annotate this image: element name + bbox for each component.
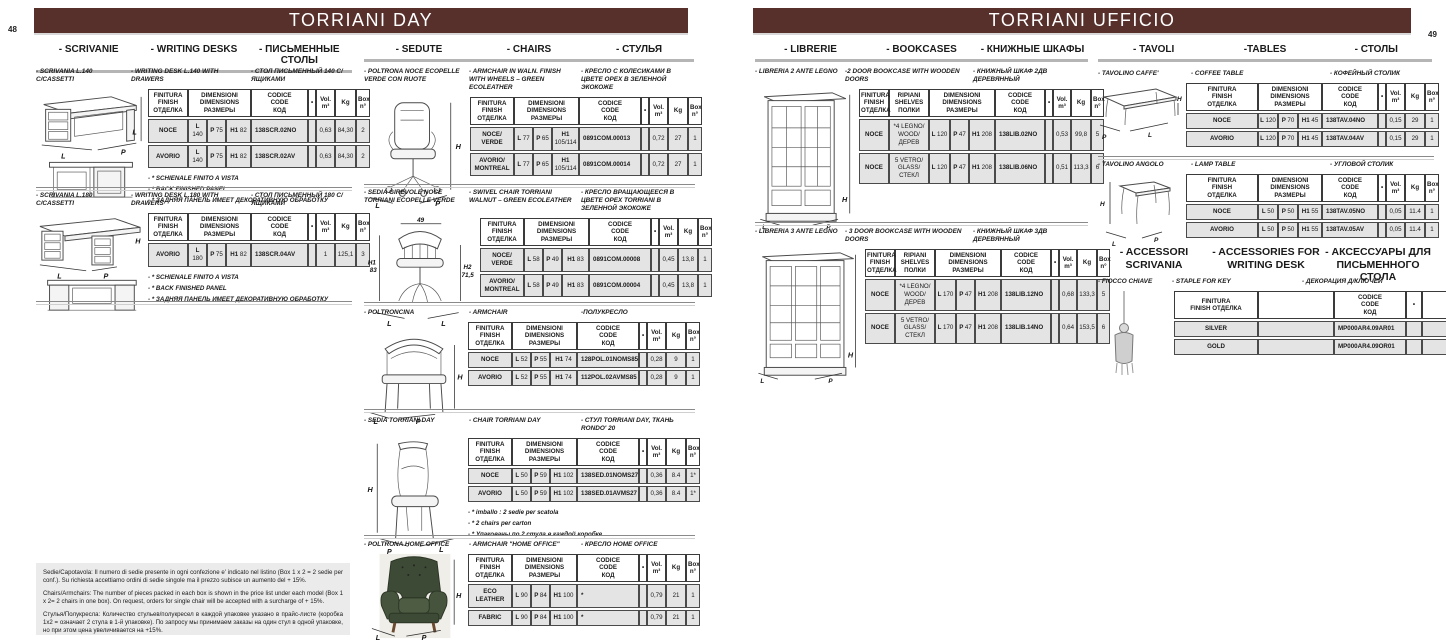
column-header: • <box>639 322 647 350</box>
spec-cell: H1 83 <box>562 248 589 272</box>
column-header: RIPIANI SHELVES ПОЛКИ <box>895 249 935 277</box>
column-header: Vol. m³ <box>649 97 668 125</box>
spec-table-grid: FINITURA FINISH ОТДЕЛКАDIMENSIONI DIMENS… <box>480 216 712 299</box>
spec-row: AVORIOL 140P 75H1 82138SCR.02AV0,6384,30… <box>148 145 370 169</box>
spec-cell: L 52 <box>512 370 531 386</box>
fig-label-p: P <box>1102 134 1107 141</box>
spec-cell: P 70 <box>1278 131 1298 147</box>
packing-note-box: Sedie/Capotavola: Il numero di sedie pre… <box>36 563 350 635</box>
spec-cell: AVORIO <box>468 486 512 502</box>
spec-row: NOCE*4 LEGNO/ WOOD/ДЕРЕВL 170P 47H1 2081… <box>865 279 1110 310</box>
column-header: CODICE CODE КОД <box>589 218 651 246</box>
divider <box>1098 156 1434 160</box>
spec-cell: NOCE <box>148 119 188 143</box>
column-header: CODICE CODE КОД <box>577 554 639 582</box>
spec-cell <box>1378 204 1386 220</box>
spec-row: NOCE5 VETRO/ GLASS/СТЕКЛL 170P 47H1 2081… <box>865 313 1110 344</box>
column-header: Kg <box>1077 249 1097 277</box>
column-header: Kg <box>1071 89 1091 117</box>
spec-cell: H1 102 <box>550 486 577 502</box>
spec-cell: 0,15 <box>1386 113 1405 129</box>
spec-cell: P 47 <box>950 153 969 184</box>
spec-cell <box>1051 313 1059 344</box>
column-header: FINITURA FINISH ОТДЕЛКА <box>468 438 512 466</box>
divider <box>36 187 352 191</box>
spec-cell: 0,45 <box>659 274 678 298</box>
spec-cell: * <box>577 584 639 608</box>
spec-row: FABRICL 90P 84H1 100*0,79211 <box>468 610 700 626</box>
product-titles: - LIBRERIA 2 ANTE LEGNO -2 DOOR BOOKCASE… <box>755 68 1088 84</box>
product-titles: - SCRIVANIA L.180 C/CASSETTI - WRITING D… <box>36 192 352 208</box>
section-label-ru: - СТОЛЫ <box>1321 44 1432 55</box>
column-header: Kg <box>666 554 686 582</box>
spec-cell: 1* <box>686 486 700 502</box>
spec-row: AVORIO/ MONTREALL 58P 49H1 830891COM.000… <box>480 274 712 298</box>
product-title-it: - POLTRONA HOME OFFICE <box>364 541 469 549</box>
section-label-it: - SCRIVANIE <box>36 44 141 66</box>
spec-cell: NOCE <box>1186 113 1258 129</box>
spec-cell: 0,28 <box>647 352 666 368</box>
product-title-en: - WRITING DESK L.180 WITH DRAWERS <box>131 192 251 208</box>
fig-label-h: H <box>456 592 462 600</box>
page-number-left: 48 <box>8 25 17 34</box>
spec-cell: 84,30 <box>335 145 356 169</box>
column-header: Kg <box>1405 83 1425 111</box>
spec-cell <box>639 486 647 502</box>
spec-cell: 112POL.02AVMS85 <box>577 370 639 386</box>
product-title-en: - CHAIR TORRIANI DAY <box>469 417 581 433</box>
column-header: Vol. m³ <box>647 554 666 582</box>
spec-cell: P 47 <box>950 119 969 150</box>
page-number-right: 49 <box>1428 30 1437 39</box>
product-titles: - SCRIVANIA L.140 C/CASSETTI - WRITING D… <box>36 68 352 84</box>
column-header <box>1422 291 1446 319</box>
product-title-en: - COFFEE TABLE <box>1191 70 1330 78</box>
product-title-ru: - КОФЕЙНЫЙ СТОЛИК <box>1330 70 1434 78</box>
column-header: • <box>651 218 659 246</box>
product-title-it: - SCRIVANIA L.140 C/CASSETTI <box>36 68 131 84</box>
spec-cell: NOCE <box>468 468 512 484</box>
product-title-it: - SCRIVANIA L.180 C/CASSETTI <box>36 192 131 208</box>
spec-cell: AVORIO/ MONTREAL <box>470 153 514 177</box>
column-header: CODICE CODE КОД <box>251 213 308 241</box>
column-header: Box n° <box>686 438 700 466</box>
spec-row: NOCE5 VETRO/ GLASS/СТЕКЛL 120P 47H1 2081… <box>859 153 1104 184</box>
spec-row: NOCE/ VERDEL 58P 49H1 830891COM.000080,4… <box>480 248 712 272</box>
spec-cell: NOCE <box>865 279 895 310</box>
desk-180-drawing: H L P <box>36 211 144 315</box>
column-header: Box n° <box>698 218 712 246</box>
column-header: FINITURA FINISH ОТДЕЛКА <box>148 89 188 117</box>
spec-cell: H1 45 <box>1298 131 1322 147</box>
product-title-ru: - КРЕСЛО С КОЛЕСИКАМИ В ЦВЕТЕ ОРЕХ В ЗЕЛ… <box>581 68 695 92</box>
spec-cell: L 50 <box>1258 222 1278 238</box>
column-header: Kg <box>666 438 686 466</box>
spec-cell: L 58 <box>524 248 543 272</box>
column-header: • <box>1051 249 1059 277</box>
spec-cell: 138SCR.04AV <box>251 243 308 267</box>
product-title-it: - TAVOLINO CAFFE' <box>1098 70 1191 78</box>
spec-cell: P 75 <box>207 243 226 267</box>
column-header: DIMENSIONI DIMENSIONS РАЗМЕРЫ <box>512 322 577 350</box>
product-titles: - SEDIA GIREVOLE NOCE TORRIANI ECOPELLE … <box>364 189 695 213</box>
spec-cell: L 50 <box>512 468 531 484</box>
spec-cell: 1 <box>1425 131 1439 147</box>
section-label-it: - SEDUTE <box>364 44 474 55</box>
column-header: Box n° <box>686 554 700 582</box>
product-chair-torriani-day: - SEDIA TORRIANI DAY - CHAIR TORRIANI DA… <box>364 417 695 554</box>
fig-label-h1: H1 <box>368 259 377 266</box>
spec-cell: 138LIB.12NO <box>1001 279 1051 310</box>
spec-cell: 0891COM.00013 <box>579 127 641 151</box>
spec-table: FINITURA FINISH ОТДЕЛКАDIMENSIONI DIMENS… <box>480 216 695 299</box>
product-title-it: - SEDIA GIREVOLE NOCE TORRIANI ECOPELLE … <box>364 189 469 213</box>
column-header: CODICE CODE КОД <box>995 89 1045 117</box>
fig-label-h: L <box>132 127 136 136</box>
note-line: Sedie/Capotavola: Il numero di sedie pre… <box>43 569 343 585</box>
divider <box>755 222 1088 226</box>
column-header: FINITURA FINISH ОТДЕЛКА <box>1186 174 1258 202</box>
spec-cell: *4 LEGNO/ WOOD/ДЕРЕВ <box>889 119 929 150</box>
spec-table-grid: FINITURA FINISH ОТДЕЛКАDIMENSIONI DIMENS… <box>148 87 370 170</box>
product-poltroncina: - POLTRONCINA - ARMCHAIR -ПОЛУКРЕСЛО H L… <box>364 309 695 424</box>
product-lamp-table: - TAVOLINO ANGOLO - LAMP TABLE - УГЛОВОЙ… <box>1098 161 1434 250</box>
column-header: FINITURA FINISH ОТДЕЛКА <box>468 322 512 350</box>
section-label-ru: - КНИЖНЫЕ ШКАФЫ <box>977 44 1088 55</box>
product-title-en: -2 DOOR BOOKCASE WITH WOODEN DOORS <box>845 68 973 84</box>
column-header: CODICE CODE КОД <box>1001 249 1051 277</box>
column-header: CODICE CODE КОД <box>1334 291 1406 319</box>
spec-cell: 5 VETRO/ GLASS/СТЕКЛ <box>889 153 929 184</box>
column-header: • <box>1406 291 1422 319</box>
fig-label-h: H <box>1177 96 1182 103</box>
column-header: Box n° <box>688 97 702 125</box>
spec-cell: 1 <box>686 610 700 626</box>
spec-row: ECO LEATHERL 90P 84H1 100*0,79211 <box>468 584 700 608</box>
spec-cell: H1 82 <box>226 119 251 143</box>
spec-cell: P 55 <box>531 370 550 386</box>
spec-cell: H1 82 <box>226 145 251 169</box>
key-tassel-drawing <box>1098 289 1170 385</box>
spec-row: NOCEL 52P 55H1 74128POL.01NOMS850,2891 <box>468 352 700 368</box>
spec-cell: H1 55 <box>1298 204 1322 220</box>
column-header: DIMENSIONI DIMENSIONS РАЗМЕРЫ <box>1258 83 1322 111</box>
note-line: Стулья/Полукресла: Количество стульев/по… <box>43 611 343 635</box>
product-title-en: - 3 DOOR BOOKCASE WITH WOODEN DOORS <box>845 228 973 244</box>
spec-cell <box>1045 153 1053 184</box>
column-header: • <box>308 89 316 117</box>
spec-cell: L 170 <box>935 279 956 310</box>
fig-label-p: P <box>103 271 108 280</box>
spec-cell: 0,53 <box>1053 119 1071 150</box>
spec-cell: 0,79 <box>647 610 666 626</box>
column-header: DIMENSIONI DIMENSIONS РАЗМЕРЫ <box>188 213 251 241</box>
spec-cell: P 49 <box>543 248 562 272</box>
spec-cell: 1 <box>316 243 335 267</box>
product-desk-180: - SCRIVANIA L.180 C/CASSETTI - WRITING D… <box>36 192 352 315</box>
spec-cell: H1 208 <box>975 313 1001 344</box>
product-titles: - TAVOLINO ANGOLO - LAMP TABLE - УГЛОВОЙ… <box>1098 161 1434 169</box>
product-title-ru: - ДЕКОРАЦИЯ Д/КЛЮЧЕЙ <box>1302 278 1434 286</box>
spec-cell <box>641 127 649 151</box>
spec-cell: L 77 <box>514 127 533 151</box>
note-line: Chairs/Armchairs: The number of pieces p… <box>43 590 343 606</box>
spec-cell <box>639 584 647 608</box>
spec-table-grid: FINITURA FINISH ОТДЕЛКАDIMENSIONI DIMENS… <box>468 552 700 628</box>
spec-cell <box>651 248 659 272</box>
product-title-ru: - СТОЛ ПИСЬМЕННЫЙ 180 С/ЯЩИКАМИ <box>251 192 352 208</box>
product-titles: - FIOCCO CHIAVE - STAPLE FOR KEY - ДЕКОР… <box>1098 278 1434 286</box>
spec-table: FINITURA FINISH ОТДЕЛКАDIMENSIONI DIMENS… <box>148 87 352 170</box>
spec-cell: 1 <box>698 248 712 272</box>
section-header-librerie: - LIBRERIE - BOOKCASES - КНИЖНЫЕ ШКАФЫ <box>755 44 1088 62</box>
section-label-ru: - ПИСЬМЕННЫЕ СТОЛЫ <box>247 44 352 66</box>
fig-label-l: L <box>376 634 380 640</box>
spec-row: AVORIOL 50P 50H1 55138TAV.05AV0,0511.41 <box>1186 222 1439 238</box>
spec-cell: 0,51 <box>1053 153 1071 184</box>
spec-cell: P 55 <box>531 352 550 368</box>
fig-label-l: L <box>57 271 61 280</box>
page-title-torriani-day: TORRIANI DAY <box>34 8 688 35</box>
spec-cell: 0891COM.00008 <box>589 248 651 272</box>
fig-label-p: P <box>1154 237 1159 244</box>
spec-cell: 0,45 <box>659 248 678 272</box>
spec-cell <box>651 274 659 298</box>
spec-cell: H1 82 <box>226 243 251 267</box>
spec-cell: P 75 <box>207 145 226 169</box>
spec-row: NOCE*4 LEGNO/ WOOD/ДЕРЕВL 120P 47H1 2081… <box>859 119 1104 150</box>
spec-cell <box>1378 222 1386 238</box>
product-bookcase-2-door: - LIBRERIA 2 ANTE LEGNO -2 DOOR BOOKCASE… <box>755 68 1088 229</box>
spec-cell: 1 <box>698 274 712 298</box>
column-header: • <box>639 554 647 582</box>
fig-label-h: H <box>457 373 463 382</box>
bookcase-3-door-drawing: H L P <box>755 247 861 383</box>
column-header: Vol. m³ <box>316 89 335 117</box>
spec-cell: 138SED.01NOMS27 <box>577 468 639 484</box>
product-titles: - POLTRONA HOME OFFICE - ARMCHAIR "HOME … <box>364 541 695 549</box>
column-header: CODICE CODE КОД <box>1322 83 1378 111</box>
spec-row: AVORIOL 52P 55H1 74112POL.02AVMS850,2891 <box>468 370 700 386</box>
spec-cell: SILVER <box>1174 321 1258 337</box>
spec-cell: H1 100 <box>550 610 577 626</box>
product-title-en: - SWIVEL CHAIR TORRIANI WALNUT – GREEN E… <box>469 189 581 213</box>
spec-cell: AVORIO <box>148 243 188 267</box>
column-header: FINITURA FINISH ОТДЕЛКА <box>865 249 895 277</box>
spec-cell: 0,36 <box>647 468 666 484</box>
product-titles: - TAVOLINO CAFFE' - COFFEE TABLE - КОФЕЙ… <box>1098 70 1434 78</box>
spec-cell: 29 <box>1405 113 1425 129</box>
product-title-ru: - УГЛОВОЙ СТОЛИК <box>1330 161 1434 169</box>
spec-cell: H1 208 <box>969 119 995 150</box>
spec-cell: NOCE <box>468 352 512 368</box>
spec-cell: AVORIO <box>468 370 512 386</box>
spec-cell <box>639 370 647 386</box>
spec-table: FINITURA FINISH ОТДЕЛКАRIPIANI SHELVES П… <box>865 247 1088 346</box>
spec-cell: 1 <box>686 370 700 386</box>
column-header: DIMENSIONI DIMENSIONS РАЗМЕРЫ <box>512 554 577 582</box>
product-title-it: - LIBRERIA 3 ANTE LEGNO <box>755 228 845 244</box>
spec-cell: 138TAV.04AV <box>1322 131 1378 147</box>
spec-cell: 0,64 <box>1059 313 1077 344</box>
spec-cell: 8.4 <box>666 468 686 484</box>
product-title-ru: - СТОЛ ПИСЬМЕННЫЙ 140 С/ЯЩИКАМИ <box>251 68 352 84</box>
product-title-ru: - КНИЖНЫЙ ШКАФ 2ДВ ДЕРЕВЯННЫЙ <box>973 68 1088 84</box>
product-title-en: - ARMCHAIR "HOME OFFICE" <box>469 541 581 549</box>
column-header: • <box>641 97 649 125</box>
spec-table: FINITURA FINISH ОТДЕЛКАCODICE CODE КОД•S… <box>1174 289 1434 357</box>
spec-cell: P 84 <box>531 584 550 608</box>
spec-cell <box>308 119 316 143</box>
spec-table-grid: FINITURA FINISH ОТДЕЛКАDIMENSIONI DIMENS… <box>1186 172 1439 240</box>
column-header: Box n° <box>686 322 700 350</box>
product-title-ru: - КРЕСЛО HOME OFFICE <box>581 541 695 549</box>
spec-cell: 9 <box>666 352 686 368</box>
fig-label-h: H <box>456 142 462 151</box>
fig-label-l: L <box>61 152 65 161</box>
column-header: Kg <box>335 213 356 241</box>
spec-cell: H1 208 <box>969 153 995 184</box>
spec-cell: L 50 <box>1258 204 1278 220</box>
spec-table-grid: FINITURA FINISH ОТДЕЛКАDIMENSIONI DIMENS… <box>468 320 700 388</box>
spec-cell: P 75 <box>207 119 226 143</box>
column-header: Box n° <box>1425 83 1439 111</box>
spec-cell: P 59 <box>531 468 550 484</box>
spec-cell: 113,3 <box>1071 153 1091 184</box>
spec-cell: L 77 <box>514 153 533 177</box>
product-title-ru: - КРЕСЛО ВРАЩАЮЩЕЕСЯ В ЦВЕТЕ ОРЕХ TORRIA… <box>581 189 695 213</box>
column-header: • <box>1378 83 1386 111</box>
spec-cell: P 50 <box>1278 222 1298 238</box>
spec-cell: 1 <box>686 584 700 608</box>
column-header: CODICE CODE КОД <box>579 97 641 125</box>
spec-table: FINITURA FINISH ОТДЕЛКАDIMENSIONI DIMENS… <box>148 211 352 269</box>
spec-cell: H1 100 <box>550 584 577 608</box>
spec-cell: P 65 <box>533 127 552 151</box>
product-titles: - SEDIA TORRIANI DAY - CHAIR TORRIANI DA… <box>364 417 695 433</box>
product-title-en: - STAPLE FOR KEY <box>1172 278 1302 286</box>
spec-cell <box>308 145 316 169</box>
spec-cell: H1 105/114 <box>552 127 579 151</box>
fig-label-h1-value: 83 <box>370 267 377 274</box>
spec-cell: P 47 <box>956 313 975 344</box>
spec-cell: 138SCR.02AV <box>251 145 308 169</box>
spec-cell: H1 55 <box>1298 222 1322 238</box>
column-header: CODICE CODE КОД <box>577 322 639 350</box>
spec-table-grid: FINITURA FINISH ОТДЕЛКАDIMENSIONI DIMENS… <box>470 95 702 178</box>
spec-cell <box>639 468 647 484</box>
spec-cell: 0,72 <box>649 127 668 151</box>
spec-cell: L 90 <box>512 610 531 626</box>
spec-cell: 138TAV.05AV <box>1322 222 1378 238</box>
spec-row: NOCE/ VERDEL 77P 65H1 105/1140891COM.000… <box>470 127 702 151</box>
column-header: DIMENSIONI DIMENSIONS РАЗМЕРЫ <box>188 89 251 117</box>
section-label-it: - LIBRERIE <box>755 44 866 55</box>
spec-cell: 138TAV.04NO <box>1322 113 1378 129</box>
column-header: DIMENSIONI DIMENSIONS РАЗМЕРЫ <box>1258 174 1322 202</box>
divider <box>364 535 695 539</box>
spec-cell: P 84 <box>531 610 550 626</box>
spec-cell: ECO LEATHER <box>468 584 512 608</box>
column-header: CODICE CODE КОД <box>1322 174 1378 202</box>
spec-row: AVORIOL 180P 75H1 82138SCR.04AV1125,13 <box>148 243 370 267</box>
column-header: FINITURA FINISH ОТДЕЛКА <box>470 97 514 125</box>
spec-cell: FABRIC <box>468 610 512 626</box>
column-header: RIPIANI SHELVES ПОЛКИ <box>889 89 929 117</box>
fig-label-h2: H2 <box>463 264 472 271</box>
spec-cell: L 120 <box>1258 113 1278 129</box>
spec-cell: L 180 <box>188 243 207 267</box>
product-title-ru: - СТУЛ TORRIANI DAY, ТКАНЬ RONDO' 20 <box>581 417 695 433</box>
spec-cell: 13,8 <box>678 274 698 298</box>
spec-cell: AVORIO <box>148 145 188 169</box>
lamp-table-drawing: H L P <box>1098 172 1182 250</box>
product-title-it: - TAVOLINO ANGOLO <box>1098 161 1191 169</box>
column-header: FINITURA FINISH ОТДЕЛКА <box>1174 291 1258 319</box>
fig-label-l: L <box>1148 132 1152 139</box>
spec-cell <box>1051 279 1059 310</box>
fig-label-l: L <box>760 378 764 383</box>
spec-cell: H1 45 <box>1298 113 1322 129</box>
column-header: FINITURA FINISH ОТДЕЛКА <box>1186 83 1258 111</box>
spec-table-grid: FINITURA FINISH ОТДЕЛКАDIMENSIONI DIMENS… <box>468 436 700 504</box>
spec-cell: P 70 <box>1278 113 1298 129</box>
coffee-table-drawing: H P L <box>1098 81 1182 143</box>
fig-label-p: P <box>121 148 126 157</box>
product-notes: - * imballo : 2 sedie per scatola- * 2 c… <box>468 509 695 538</box>
spec-cell: 138SED.01AVMS27 <box>577 486 639 502</box>
product-title-en: - LAMP TABLE <box>1191 161 1330 169</box>
spec-table: FINITURA FINISH ОТДЕЛКАDIMENSIONI DIMENS… <box>1186 81 1434 149</box>
spec-cell: P 59 <box>531 486 550 502</box>
spec-cell <box>1406 339 1422 355</box>
column-header: Vol. m³ <box>316 213 335 241</box>
spec-cell: 0,05 <box>1386 204 1405 220</box>
spec-cell: 27 <box>668 127 688 151</box>
spec-cell: 138LIB.06NO <box>995 153 1045 184</box>
product-title-it: - POLTRONA NOCE ECOPELLE VERDE CON RUOTE <box>364 68 469 92</box>
spec-cell: 128POL.01NOMS85 <box>577 352 639 368</box>
spec-cell: 0,68 <box>1059 279 1077 310</box>
column-header: • <box>1045 89 1053 117</box>
spec-cell: 1 <box>1425 222 1439 238</box>
spec-cell: AVORIO <box>1186 222 1258 238</box>
section-label-en: - CHAIRS <box>474 44 584 55</box>
spec-cell: 138LIB.02NO <box>995 119 1045 150</box>
column-header: • <box>1378 174 1386 202</box>
spec-cell: L 120 <box>929 153 950 184</box>
spec-cell: 11.4 <box>1405 204 1425 220</box>
product-title-it: - FIOCCO CHIAVE <box>1098 278 1172 286</box>
column-header: Vol. m³ <box>659 218 678 246</box>
product-key-tassel: - FIOCCO CHIAVE - STAPLE FOR KEY - ДЕКОР… <box>1098 278 1434 385</box>
column-header: Vol. m³ <box>647 322 666 350</box>
spec-cell: AVORIO/ MONTREAL <box>480 274 524 298</box>
column-header <box>1258 291 1334 319</box>
column-header: Box n° <box>1425 174 1439 202</box>
spec-cell: P 47 <box>956 279 975 310</box>
spec-cell <box>1422 321 1446 337</box>
spec-cell: H1 208 <box>975 279 1001 310</box>
spec-cell: 29 <box>1405 131 1425 147</box>
product-title-ru: - КНИЖНЫЙ ШКАФ 3ДВ ДЕРЕВЯННЫЙ <box>973 228 1088 244</box>
spec-cell: 138LIB.14NO <box>1001 313 1051 344</box>
column-header: Vol. m³ <box>1059 249 1077 277</box>
spec-row: SILVERMP000AR4.09AR01 <box>1174 321 1446 337</box>
column-header: Kg <box>668 97 688 125</box>
spec-cell: AVORIO <box>1186 131 1258 147</box>
spec-cell: 0,63 <box>316 145 335 169</box>
